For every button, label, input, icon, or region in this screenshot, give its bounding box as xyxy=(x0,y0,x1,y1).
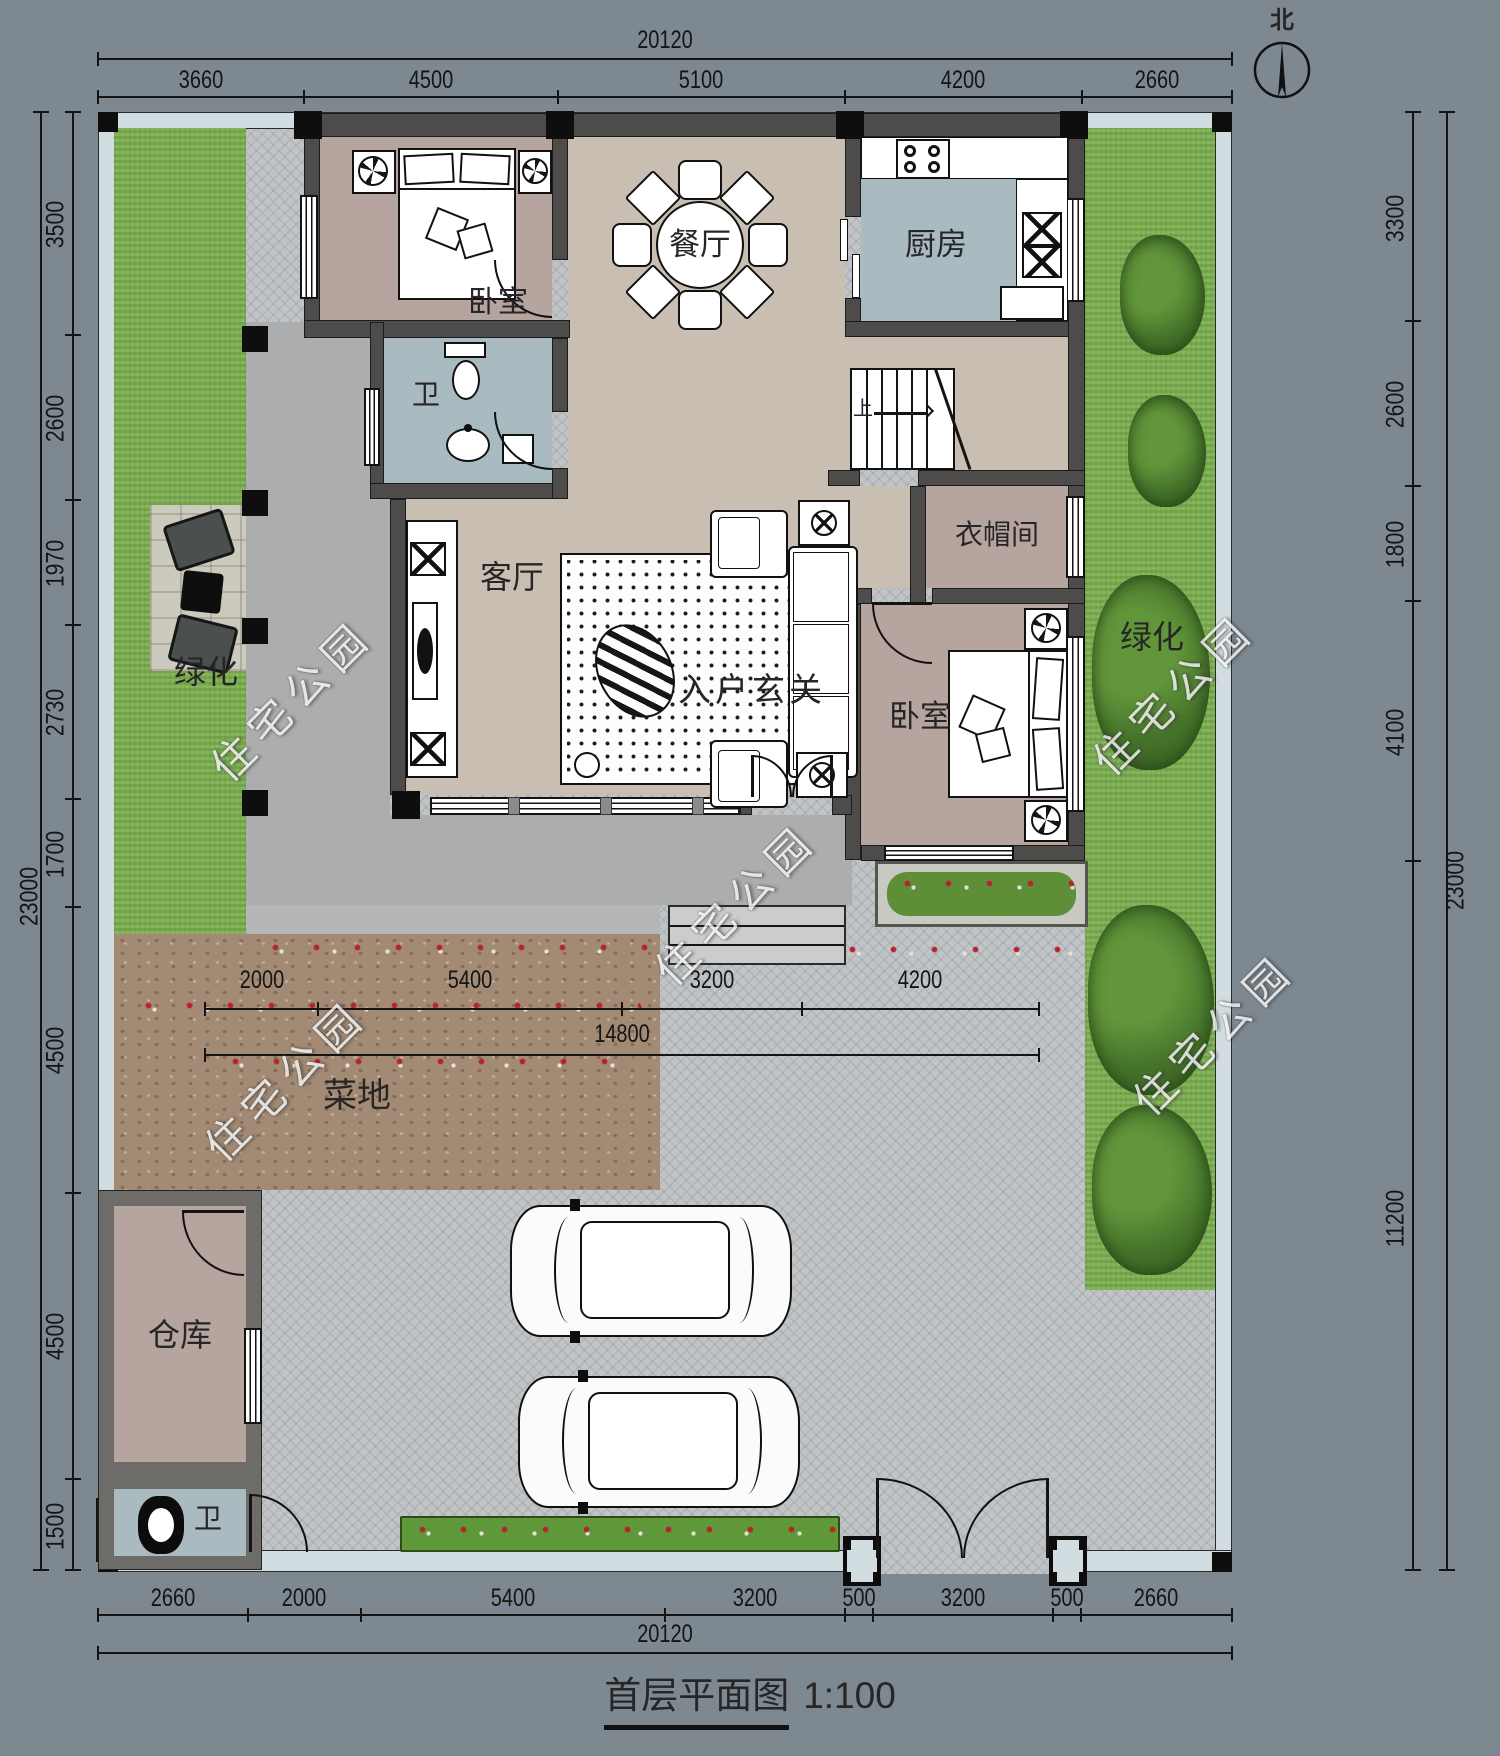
dim-line xyxy=(1412,112,1414,1570)
area-label-green-left: 绿化 xyxy=(166,655,246,690)
car-icon xyxy=(510,1205,792,1337)
corner-column xyxy=(98,112,118,132)
dim-tick xyxy=(1439,111,1455,113)
dim-tick xyxy=(844,1608,846,1622)
wall-living-west xyxy=(390,499,406,795)
car-windshield xyxy=(562,1388,592,1494)
dim-inner-total-label: 14800 xyxy=(582,1020,662,1049)
dim-tick xyxy=(1081,90,1083,104)
dim-tick xyxy=(872,1608,874,1622)
title-name: 首层平面图 xyxy=(604,1676,789,1730)
dim-tick xyxy=(1231,1608,1233,1622)
window xyxy=(300,195,318,299)
sink-basin-icon xyxy=(1022,212,1062,246)
hedge-strip xyxy=(400,1516,840,1552)
compass-north-label: 北 xyxy=(1266,8,1298,34)
stair-riser xyxy=(896,370,898,468)
window-post xyxy=(600,797,612,815)
pillow-icon xyxy=(1032,727,1064,791)
sink-basin-icon xyxy=(1022,246,1062,278)
squat-toilet-icon xyxy=(138,1496,184,1554)
wall xyxy=(370,483,568,499)
dim-tick xyxy=(1405,600,1421,602)
toilet-bowl-icon xyxy=(452,360,480,400)
area-label-garden: 菜地 xyxy=(312,1078,402,1115)
stool-icon xyxy=(574,752,600,778)
patio-table-icon xyxy=(180,570,224,614)
sink-icon xyxy=(446,428,490,462)
burner xyxy=(928,145,940,157)
room-label-bath2: 卫 xyxy=(190,1504,226,1535)
side-table-icon xyxy=(798,500,850,546)
dim-tick xyxy=(1080,1608,1082,1622)
door-leaf xyxy=(751,755,754,797)
door-leaf xyxy=(872,602,932,605)
wall-under-stairs xyxy=(828,470,860,486)
car-mirror xyxy=(570,1199,580,1211)
dim-left-seg-label: 1700 xyxy=(42,812,71,897)
column xyxy=(242,490,268,516)
stair-riser xyxy=(926,370,928,468)
dim-tick xyxy=(1405,320,1421,322)
dim-inner-seg-label: 5400 xyxy=(438,966,502,995)
dim-tick xyxy=(65,1478,81,1480)
corner-column xyxy=(1212,112,1232,132)
boundary-wall-right xyxy=(1215,112,1232,1570)
dim-tick xyxy=(1231,90,1233,104)
dim-tick xyxy=(303,90,305,104)
gate-door-leaf xyxy=(876,1478,879,1558)
flower-planter xyxy=(875,861,1088,927)
dim-tick xyxy=(65,499,81,501)
sofa-cushion xyxy=(793,552,849,622)
room-label-bedroom2: 卧室 xyxy=(872,700,968,734)
car-icon xyxy=(518,1376,800,1508)
dim-right-seg-label: 1800 xyxy=(1382,502,1411,587)
dim-bottom-seg-label: 2000 xyxy=(264,1584,344,1613)
column xyxy=(242,790,268,816)
kitchen-counter xyxy=(861,137,1068,179)
dining-chair-icon xyxy=(612,223,652,267)
dim-tick xyxy=(1405,485,1421,487)
window-post xyxy=(508,797,520,815)
terrace-strip xyxy=(246,905,660,934)
column xyxy=(546,111,574,139)
window xyxy=(1066,496,1085,578)
room-label-dining: 餐厅 xyxy=(652,228,748,262)
gate-pillar-core xyxy=(847,1550,877,1572)
ceiling-fan-icon xyxy=(1031,805,1061,835)
stove-icon xyxy=(896,139,950,179)
cushion-icon xyxy=(456,222,493,259)
dim-tick xyxy=(97,90,99,104)
pillow-icon xyxy=(459,153,511,186)
pillow-icon xyxy=(1032,657,1064,721)
window-post xyxy=(692,797,704,815)
dim-right-total-label: 23000 xyxy=(1442,838,1471,923)
car-windshield xyxy=(554,1217,584,1323)
dim-tick xyxy=(1038,1002,1040,1016)
dim-right-seg-label: 11200 xyxy=(1382,1176,1411,1261)
dim-tick xyxy=(65,798,81,800)
wall xyxy=(552,338,568,412)
dim-left-seg-label: 1500 xyxy=(42,1484,71,1569)
wall xyxy=(304,320,570,338)
column xyxy=(242,326,268,352)
room-label-living: 客厅 xyxy=(468,560,556,595)
burner xyxy=(904,145,916,157)
dim-tick xyxy=(97,52,99,66)
speaker-icon xyxy=(410,542,446,576)
dim-top-seg-label: 2660 xyxy=(1117,66,1197,95)
dim-right-seg-label: 2600 xyxy=(1382,362,1411,447)
speaker-icon xyxy=(410,732,446,766)
door-leaf xyxy=(182,1210,244,1213)
toilet-icon xyxy=(444,342,486,358)
dim-bottom-seg-label: 5400 xyxy=(473,1584,553,1613)
dim-line xyxy=(98,58,1232,60)
dim-tick xyxy=(1052,1608,1054,1622)
dim-tick xyxy=(65,334,81,336)
column xyxy=(242,618,268,644)
dim-tick xyxy=(65,624,81,626)
window xyxy=(244,1328,262,1424)
dim-tick xyxy=(204,1048,206,1062)
shrub-icon xyxy=(1120,235,1205,355)
pillow-icon xyxy=(403,153,455,186)
sheet-line xyxy=(1028,652,1030,796)
stair-riser xyxy=(911,370,913,468)
dim-left-seg-label: 4500 xyxy=(42,1294,71,1379)
wall-kitchen-south xyxy=(845,321,1085,337)
dim-tick xyxy=(65,1569,81,1571)
dim-bottom-seg-label: 2660 xyxy=(1116,1584,1196,1613)
car-mirror xyxy=(578,1370,588,1382)
wall-foyer-south xyxy=(832,795,852,815)
compass-icon xyxy=(1252,40,1312,100)
window xyxy=(364,388,380,466)
burner xyxy=(928,161,940,173)
squat-toilet-bowl xyxy=(148,1508,174,1542)
armchair-cushion xyxy=(718,517,760,569)
dim-top-seg-label: 3660 xyxy=(161,66,241,95)
dim-tick xyxy=(621,1002,623,1016)
planter-flowers xyxy=(887,872,1076,916)
corner-column xyxy=(1212,1552,1232,1572)
car-rear-window xyxy=(732,1388,762,1494)
dim-inner-seg-label: 2000 xyxy=(230,966,294,995)
dim-tick xyxy=(1405,860,1421,862)
gate-pillar xyxy=(1049,1536,1087,1586)
dim-tick xyxy=(1405,1569,1421,1571)
car-cabin xyxy=(588,1392,738,1490)
wall-north xyxy=(300,113,1085,137)
dim-tick xyxy=(844,90,846,104)
ceiling-fan-icon xyxy=(522,158,548,184)
dim-left-seg-label: 2730 xyxy=(42,670,71,755)
dim-right-seg-label: 4100 xyxy=(1382,690,1411,775)
faucet-icon xyxy=(464,424,472,432)
car-mirror xyxy=(578,1502,588,1514)
dining-chair-icon xyxy=(678,290,722,330)
dim-right-seg-label: 3300 xyxy=(1382,176,1411,261)
dining-chair-icon xyxy=(748,223,788,267)
dim-tick xyxy=(97,1608,99,1622)
room-label-bedroom1: 卧室 xyxy=(448,286,548,319)
sofa-icon xyxy=(788,546,858,778)
wall xyxy=(552,468,568,499)
sheet-line xyxy=(400,188,514,190)
fridge-icon xyxy=(1000,286,1064,320)
dim-left-seg-label: 1970 xyxy=(42,521,71,606)
wall-bedroom2-north xyxy=(932,588,1085,604)
room-label-foyer: 入户玄关 xyxy=(660,672,844,708)
stair-riser xyxy=(881,370,883,468)
sliding-door-icon xyxy=(840,219,848,261)
dim-tick xyxy=(1231,1646,1233,1660)
dim-bottom-total-label: 20120 xyxy=(625,1620,705,1649)
column xyxy=(836,111,864,139)
dim-left-total-label: 23000 xyxy=(16,854,45,939)
dim-tick xyxy=(1405,111,1421,113)
shrub-bed xyxy=(832,938,1085,1093)
dim-left-seg-label: 3500 xyxy=(42,182,71,267)
car-cabin xyxy=(580,1221,730,1319)
cushion-icon xyxy=(975,727,1011,763)
dim-inner-seg-label: 4200 xyxy=(888,966,952,995)
tv-screen-icon xyxy=(417,628,433,674)
dim-line xyxy=(98,96,1232,98)
armchair-icon xyxy=(710,510,788,578)
column xyxy=(294,111,322,139)
dining-chair-icon xyxy=(678,160,722,200)
dim-tick xyxy=(33,111,49,113)
dim-tick xyxy=(1231,52,1233,66)
room-label-kitchen: 厨房 xyxy=(890,228,982,262)
gate-pillar-core xyxy=(1053,1550,1083,1572)
ceiling-fan-icon xyxy=(358,156,388,186)
side-table-lamp xyxy=(811,510,837,536)
room-label-cloakroom: 衣帽间 xyxy=(934,520,1060,551)
dim-tick xyxy=(33,1569,49,1571)
window xyxy=(1066,198,1085,302)
dim-tick xyxy=(801,1002,803,1016)
dim-tick xyxy=(65,111,81,113)
wall-cloakroom-west xyxy=(910,486,926,604)
gate-door-leaf xyxy=(1046,1478,1049,1558)
dim-tick xyxy=(1439,1569,1455,1571)
stairs-up-label: 上 xyxy=(851,398,875,420)
dim-bottom-seg-label: 3200 xyxy=(923,1584,1003,1613)
dim-bottom-seg-label: 500 xyxy=(835,1584,883,1613)
column xyxy=(392,791,420,819)
dim-tick xyxy=(65,1192,81,1194)
dim-top-seg-label: 4200 xyxy=(923,66,1003,95)
drawing-title: 首层平面图 1:100 xyxy=(500,1676,1000,1730)
dim-tick xyxy=(247,1608,249,1622)
dim-left-seg-label: 2600 xyxy=(42,376,71,461)
burner xyxy=(904,161,916,173)
window xyxy=(884,845,1014,861)
stairs-arrow-line xyxy=(874,412,928,415)
dim-tick xyxy=(204,1002,206,1016)
dim-bottom-seg-label: 2660 xyxy=(133,1584,213,1613)
sliding-door-icon xyxy=(852,254,860,298)
door-leaf xyxy=(830,755,833,797)
dim-line xyxy=(98,1652,1232,1654)
dim-top-total-label: 20120 xyxy=(625,26,705,55)
dim-tick xyxy=(360,1608,362,1622)
dim-tick xyxy=(1038,1048,1040,1062)
dim-tick xyxy=(97,1646,99,1660)
dim-tick xyxy=(557,90,559,104)
dim-bottom-seg-label: 3200 xyxy=(715,1584,795,1613)
car-mirror xyxy=(570,1331,580,1343)
room-label-warehouse: 仓库 xyxy=(130,1318,230,1353)
door-leaf xyxy=(249,1494,252,1552)
wall-kitchen-west xyxy=(845,298,861,323)
dim-line xyxy=(72,112,74,1570)
dim-top-seg-label: 5100 xyxy=(661,66,741,95)
column xyxy=(1060,111,1088,139)
dim-top-seg-label: 4500 xyxy=(391,66,471,95)
wall-under-stairs xyxy=(918,470,1085,486)
shrub-icon xyxy=(1128,395,1206,507)
title-scale: 1:100 xyxy=(803,1676,896,1717)
room-label-bath1: 卫 xyxy=(408,380,444,411)
dim-bottom-seg-label: 500 xyxy=(1043,1584,1091,1613)
shrub-icon xyxy=(1092,1105,1212,1275)
ceiling-fan-icon xyxy=(1031,613,1061,643)
window xyxy=(1066,636,1085,812)
dim-tick xyxy=(65,906,81,908)
car-rear-window xyxy=(724,1217,754,1323)
dim-left-seg-label: 4500 xyxy=(42,1008,71,1093)
